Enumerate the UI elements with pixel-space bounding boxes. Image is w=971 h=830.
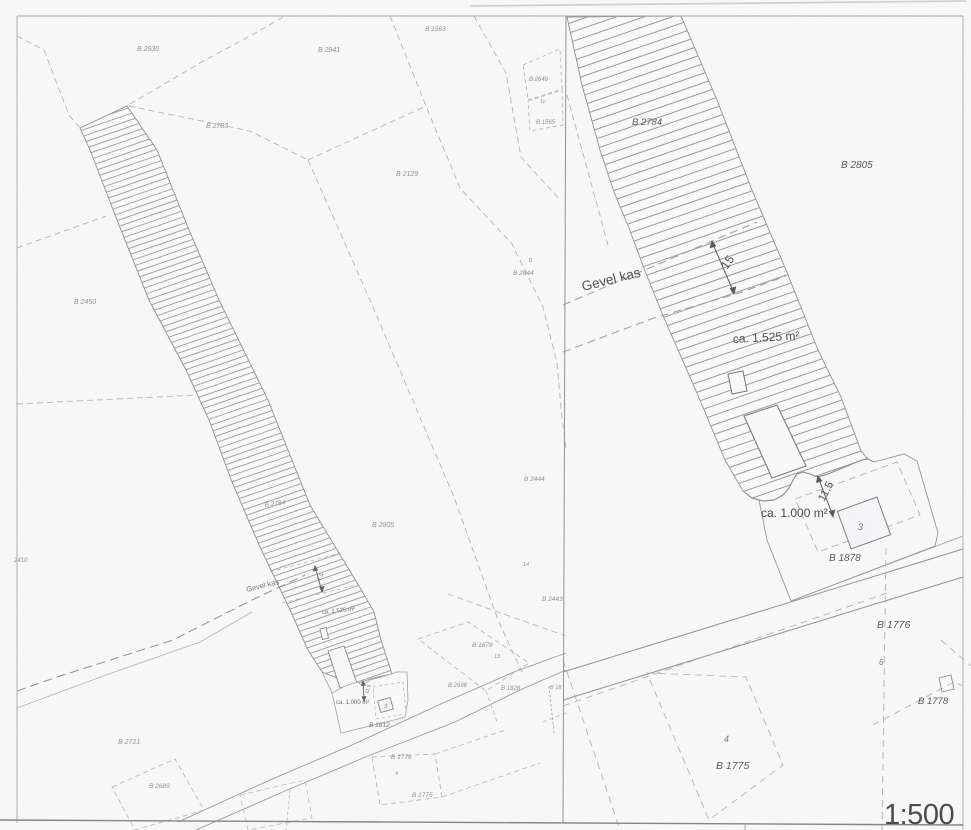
svg-text:1:500: 1:500 xyxy=(884,799,954,830)
